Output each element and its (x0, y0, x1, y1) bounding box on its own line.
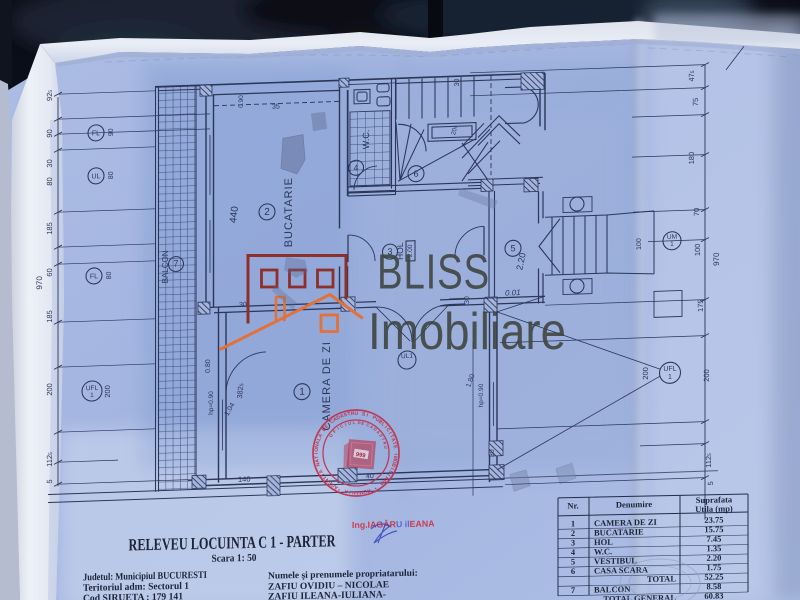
svg-text:6: 6 (413, 169, 418, 179)
svg-text:100: 100 (636, 238, 643, 250)
svg-text:BUCATARIE: BUCATARIE (283, 177, 295, 248)
svg-text:70: 70 (692, 208, 701, 217)
svg-text:970: 970 (35, 275, 44, 289)
svg-text:Cod SIRUETA : 179 141: Cod SIRUETA : 179 141 (83, 591, 183, 600)
svg-text:FL: FL (90, 273, 98, 280)
svg-text:FL: FL (92, 130, 100, 137)
svg-text:Nr.: Nr. (567, 500, 578, 510)
svg-text:Denumire: Denumire (616, 499, 652, 510)
svg-text:Imobiliare: Imobiliare (368, 303, 566, 361)
svg-text:W.C.: W.C. (361, 130, 371, 150)
svg-text:185: 185 (45, 310, 54, 323)
svg-text:35: 35 (272, 103, 280, 110)
svg-text:30: 30 (45, 159, 54, 168)
svg-text:200: 200 (641, 367, 650, 380)
svg-text:BALCON: BALCON (161, 250, 170, 283)
svg-text:1: 1 (670, 241, 674, 248)
svg-text:Ing.IAGĂRU ilEANA: Ing.IAGĂRU ilEANA (352, 519, 435, 530)
svg-text:hp=0.90: hp=0.90 (208, 391, 215, 415)
svg-text:90: 90 (108, 128, 115, 136)
svg-text:0.80: 0.80 (205, 359, 212, 373)
svg-text:60: 60 (45, 268, 54, 277)
svg-text:UFL: UFL (663, 366, 676, 373)
svg-text:1: 1 (299, 387, 305, 398)
svg-text:75: 75 (691, 98, 700, 107)
svg-text:100: 100 (693, 243, 702, 256)
svg-text:1: 1 (668, 374, 672, 381)
svg-text:7: 7 (173, 258, 178, 268)
svg-text:7: 7 (571, 585, 576, 595)
svg-text:180: 180 (687, 152, 696, 165)
svg-text:60.83: 60.83 (704, 591, 723, 600)
svg-text:U: U (354, 411, 358, 417)
svg-text:440: 440 (228, 206, 241, 224)
svg-text:6: 6 (571, 566, 575, 576)
svg-text:4: 4 (353, 163, 358, 173)
svg-text:1: 1 (90, 392, 94, 399)
svg-text:80: 80 (108, 171, 115, 179)
svg-text:30: 30 (239, 302, 247, 309)
svg-text:ZAFIU ILEANA-IULIANA-: ZAFIU ILEANA-IULIANA- (268, 589, 386, 600)
svg-text:30: 30 (489, 449, 496, 457)
svg-text:5: 5 (510, 243, 515, 253)
svg-text:hp=0.90: hp=0.90 (478, 383, 485, 407)
svg-text:2: 2 (264, 207, 270, 218)
svg-text:40: 40 (366, 473, 374, 480)
svg-text:200: 200 (45, 383, 54, 396)
svg-text:90: 90 (45, 129, 54, 138)
svg-text:80: 80 (106, 271, 113, 279)
svg-text:30: 30 (454, 78, 461, 86)
svg-text:175: 175 (696, 299, 705, 312)
svg-text:Scara 1: 50: Scara 1: 50 (212, 553, 257, 565)
svg-text:0.01: 0.01 (505, 288, 521, 298)
svg-text:UL: UL (92, 173, 101, 180)
svg-text:80: 80 (45, 177, 54, 186)
svg-text:BUCATARIE: BUCATARIE (594, 527, 644, 538)
svg-text:185: 185 (45, 222, 54, 235)
svg-text:5: 5 (706, 481, 715, 485)
svg-text:970: 970 (712, 252, 721, 266)
svg-text:0.90: 0.90 (238, 95, 245, 108)
svg-text:TOTAL: TOTAL (647, 573, 676, 584)
svg-text:Utila (mp): Utila (mp) (695, 503, 733, 514)
svg-text:200: 200 (103, 385, 112, 398)
svg-text:200: 200 (702, 369, 711, 382)
svg-text:BLISS: BLISS (377, 246, 490, 300)
svg-text:5: 5 (45, 479, 54, 483)
svg-text:140: 140 (238, 474, 251, 483)
